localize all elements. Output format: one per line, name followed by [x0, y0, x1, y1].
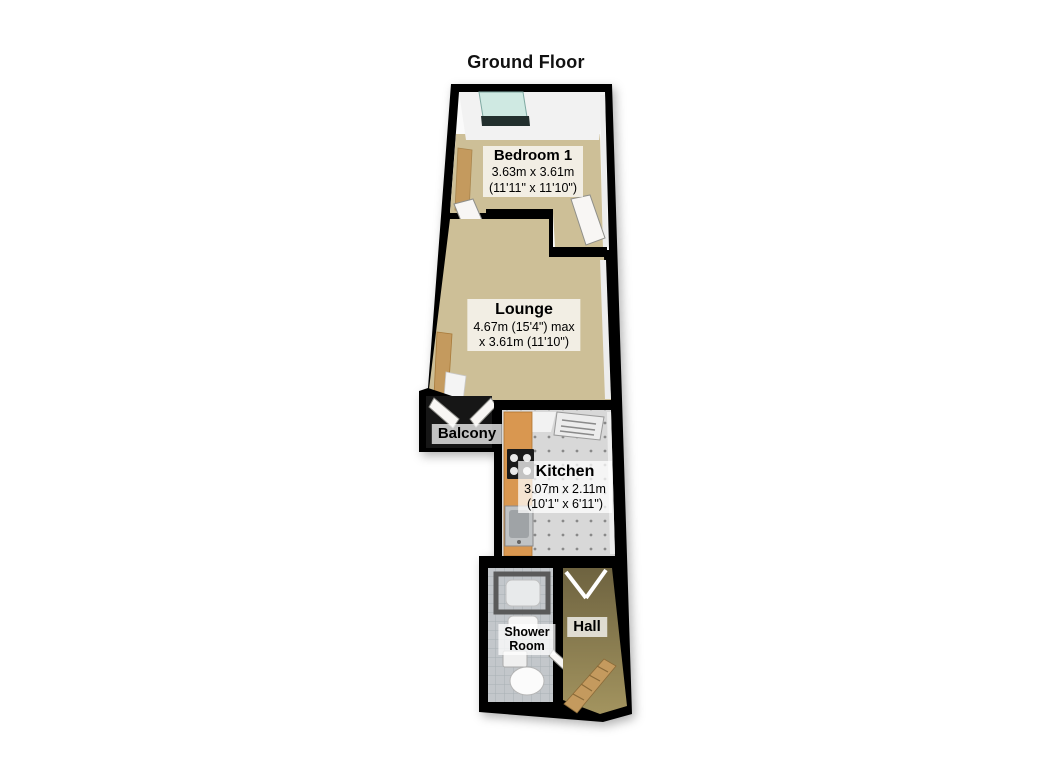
shower-room-name-line2: Room [504, 639, 549, 653]
kitchen-dim-metric: 3.07m x 2.11m [524, 482, 606, 497]
bedroom-name: Bedroom 1 [489, 147, 577, 165]
room-label-hall: Hall [567, 617, 607, 637]
room-label-shower-room: Shower Room [498, 624, 555, 655]
boiler-vent-icon [554, 412, 604, 440]
bay-window-icon [479, 92, 530, 126]
shower-room-name-line1: Shower [504, 625, 549, 639]
lounge-dim-line2: x 3.61m (11'10") [473, 335, 574, 350]
balcony-name: Balcony [438, 425, 496, 443]
room-label-bedroom: Bedroom 1 3.63m x 3.61m (11'11" x 11'10"… [483, 146, 583, 197]
room-label-kitchen: Kitchen 3.07m x 2.11m (10'1" x 6'11") [518, 461, 612, 513]
room-label-balcony: Balcony [432, 424, 502, 444]
hall-name: Hall [573, 618, 601, 636]
kitchen-name: Kitchen [524, 462, 606, 482]
kitchen-dim-imperial: (10'1" x 6'11") [524, 497, 606, 512]
kitchen-hall-wall [479, 556, 572, 568]
lounge-dim-line1: 4.67m (15'4") max [473, 320, 574, 335]
room-label-lounge: Lounge 4.67m (15'4") max x 3.61m (11'10"… [467, 299, 580, 351]
lounge-name: Lounge [473, 300, 574, 320]
page-title: Ground Floor [467, 52, 584, 73]
lounge-kitchen-wall [494, 400, 616, 410]
bedroom-dim-metric: 3.63m x 3.61m [489, 165, 577, 180]
floorplan-page: Ground Floor Bedroom 1 3.63m x 3.61m (11… [0, 0, 1055, 767]
bedroom-dim-imperial: (11'11" x 11'10") [489, 181, 577, 196]
